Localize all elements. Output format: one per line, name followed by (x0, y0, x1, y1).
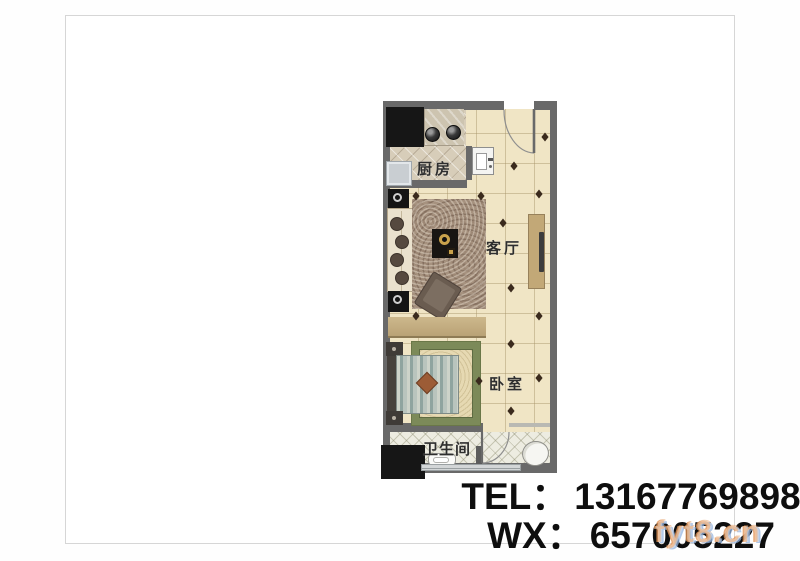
bathroom-door-arc-icon (482, 432, 509, 463)
room-label-bedroom: 卧室 (489, 373, 525, 394)
doors-and-diamonds-overlay (383, 101, 557, 473)
wx-label: WX： (487, 515, 584, 556)
room-label-kitchen: 厨房 (417, 158, 453, 179)
entry-door-arc-icon (504, 110, 534, 153)
tel-line: TEL：13167769898 (461, 477, 800, 516)
watermark: fyt8.cn (655, 514, 762, 550)
page: 厨房 客厅 卧室 卫生间 TEL：13167769898 WX：65700522… (0, 0, 800, 561)
tel-label: TEL： (461, 476, 568, 517)
room-label-living: 客厅 (486, 237, 522, 258)
tel-number: 13167769898 (574, 476, 800, 517)
photo-card: 厨房 客厅 卧室 卫生间 TEL：13167769898 WX：65700522… (65, 15, 735, 544)
room-label-bathroom: 卫生间 (423, 438, 471, 459)
floor-plan: 厨房 客厅 卧室 卫生间 (383, 101, 557, 473)
